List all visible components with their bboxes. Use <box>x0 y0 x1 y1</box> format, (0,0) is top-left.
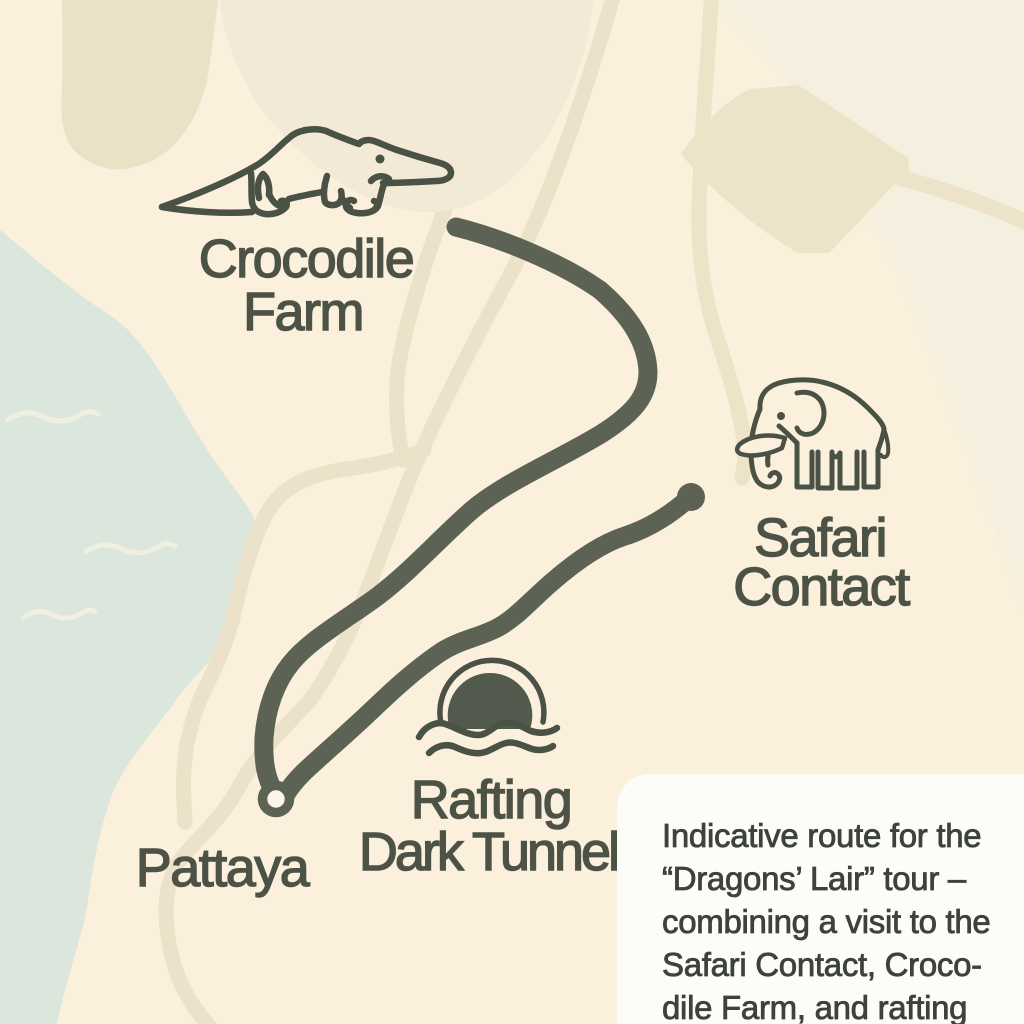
svg-text:Safari Contact, Croco-: Safari Contact, Croco- <box>662 946 982 983</box>
svg-text:Pattaya: Pattaya <box>136 838 311 898</box>
svg-text:Dark Tunnel: Dark Tunnel <box>359 822 617 882</box>
svg-text:Contact: Contact <box>733 557 910 617</box>
svg-text:dile Farm, and rafting: dile Farm, and rafting <box>662 989 967 1024</box>
svg-text:Farm: Farm <box>243 282 363 342</box>
svg-text:Rafting: Rafting <box>411 770 572 830</box>
svg-text:“Dragons’ Lair” tour –: “Dragons’ Lair” tour – <box>662 860 967 897</box>
svg-text:Crocodile: Crocodile <box>199 229 414 289</box>
svg-text:combining a visit to the: combining a visit to the <box>662 903 990 940</box>
svg-text:Indicative route for the: Indicative route for the <box>662 817 981 854</box>
